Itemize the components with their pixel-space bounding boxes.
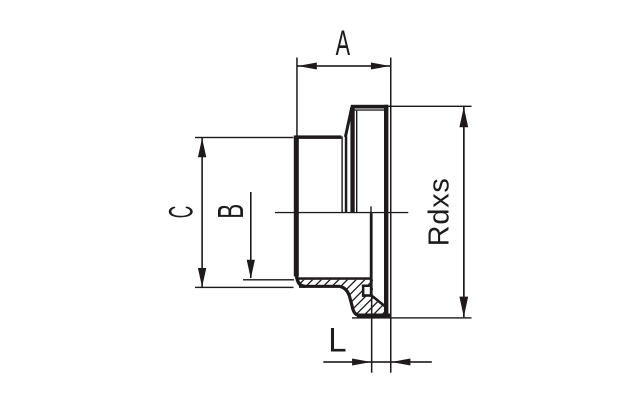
svg-text:A: A bbox=[336, 24, 351, 64]
svg-text:B: B bbox=[212, 204, 252, 219]
svg-text:Rdxs: Rdxs bbox=[424, 177, 456, 246]
svg-text:L: L bbox=[328, 322, 346, 360]
svg-text:C: C bbox=[162, 206, 200, 219]
